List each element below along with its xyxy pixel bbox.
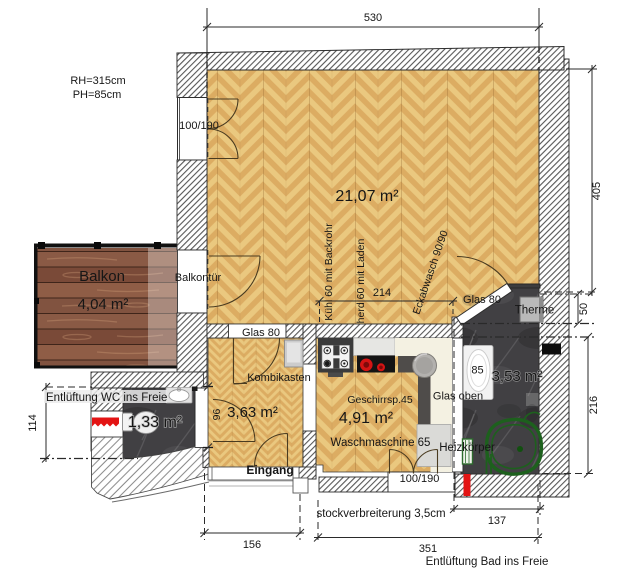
svg-text:405: 405 [591,182,603,200]
svg-text:Entlüftung WC ins Freie: Entlüftung WC ins Freie [46,392,167,404]
svg-text:herd 60 mit Laden: herd 60 mit Laden [355,239,367,324]
svg-text:3,53 m²: 3,53 m² [492,368,543,385]
svg-text:Eingang: Eingang [246,463,293,477]
svg-text:216: 216 [588,396,600,414]
svg-text:214: 214 [373,287,391,299]
svg-text:1,33 m²: 1,33 m² [128,414,183,431]
svg-text:Entlüftung Bad ins Freie: Entlüftung Bad ins Freie [426,556,549,568]
svg-text:Glas 80: Glas 80 [463,294,501,306]
svg-text:Waschmaschine 65: Waschmaschine 65 [331,437,431,449]
svg-text:530: 530 [364,12,382,24]
svg-text:100/190: 100/190 [400,473,440,485]
svg-text:PH=85cm: PH=85cm [73,89,122,101]
svg-text:stockverbreiterung 3,5cm: stockverbreiterung 3,5cm [316,508,445,520]
svg-text:Kombikasten: Kombikasten [247,372,311,384]
svg-text:114: 114 [27,414,39,432]
svg-text:3,63 m²: 3,63 m² [227,404,278,421]
svg-text:Glas 80: Glas 80 [242,327,280,339]
svg-text:50: 50 [578,303,590,315]
svg-text:351: 351 [419,543,437,555]
svg-text:Glas oben: Glas oben [433,391,483,403]
svg-text:Balkontür: Balkontür [175,272,222,284]
svg-text:Kühl 60 mit Backrohr: Kühl 60 mit Backrohr [323,223,335,321]
svg-text:137: 137 [488,515,506,527]
svg-text:Balkon: Balkon [79,268,125,285]
svg-text:Geschirrsp.45: Geschirrsp.45 [347,394,413,406]
svg-text:4,04 m²: 4,04 m² [78,296,129,313]
svg-text:21,07 m²: 21,07 m² [335,188,399,205]
svg-text:Therme: Therme [515,305,555,317]
svg-text:96: 96 [211,409,223,421]
svg-text:Heizkörper: Heizkörper [439,442,495,454]
svg-text:85: 85 [471,365,483,377]
svg-text:4,91 m²: 4,91 m² [339,410,394,427]
svg-text:RH=315cm: RH=315cm [70,75,125,87]
svg-text:156: 156 [243,539,261,551]
svg-text:100/190: 100/190 [179,120,219,132]
